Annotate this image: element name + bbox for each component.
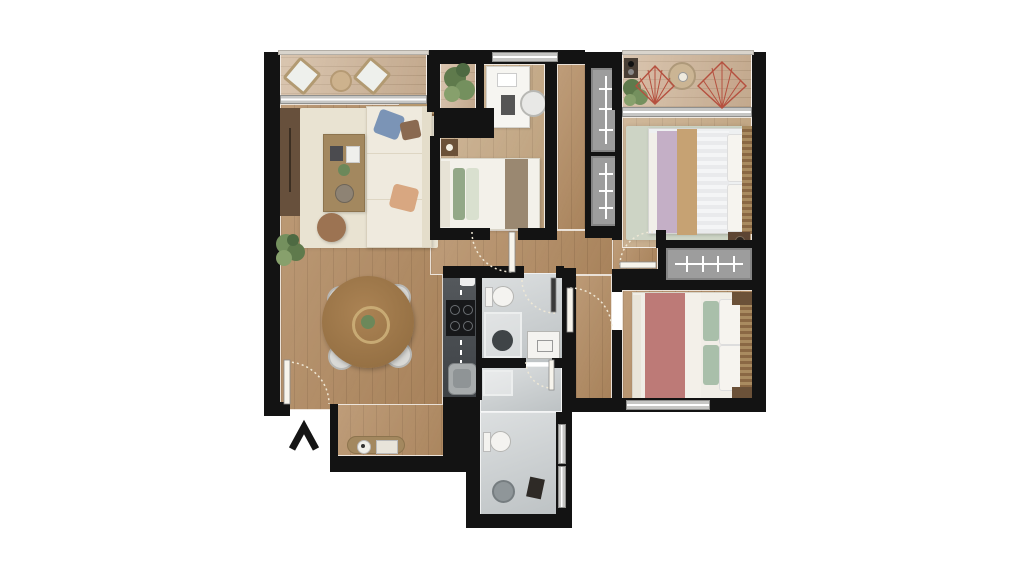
pillow-pattern xyxy=(466,168,479,220)
dining-table xyxy=(322,276,414,368)
closet-tick xyxy=(599,129,614,131)
pillow-brown xyxy=(399,119,421,141)
wall xyxy=(466,400,480,528)
wardrobe xyxy=(666,248,752,280)
wall xyxy=(656,230,666,248)
console-tray xyxy=(376,440,398,454)
wall xyxy=(612,269,666,282)
wall xyxy=(476,266,482,400)
wall xyxy=(330,456,470,472)
wall xyxy=(556,266,564,278)
tv-cabinet xyxy=(280,108,300,216)
coffee-table-book xyxy=(346,146,360,163)
console-item xyxy=(628,61,634,67)
table-item xyxy=(678,72,688,82)
wall xyxy=(443,266,524,278)
pillow-sage xyxy=(453,168,465,220)
floor-bathroom-second-lower xyxy=(480,412,562,516)
cabinet-handle xyxy=(289,128,291,192)
shower-drain-mat xyxy=(492,480,515,503)
toilet-bowl xyxy=(492,286,514,307)
burner xyxy=(450,305,460,315)
console-plate-center xyxy=(361,444,365,448)
wall xyxy=(330,404,338,464)
window xyxy=(558,424,566,464)
wall xyxy=(430,228,490,240)
headboard xyxy=(441,161,450,227)
dining-centerpiece xyxy=(352,306,390,344)
blanket-pink xyxy=(645,293,685,401)
balcony-parapet xyxy=(278,50,429,55)
duvet-striped xyxy=(697,131,729,233)
closet-tick xyxy=(599,173,614,175)
wall xyxy=(562,268,576,412)
wall xyxy=(430,136,440,236)
wall xyxy=(434,108,494,138)
wall xyxy=(612,330,622,402)
burner xyxy=(463,305,473,315)
coffee-table xyxy=(323,134,365,212)
wall xyxy=(427,52,440,112)
console-sideboard xyxy=(347,436,405,454)
washer-door xyxy=(537,340,553,352)
wall xyxy=(752,52,766,412)
sliding-window xyxy=(280,95,427,104)
sink-basin xyxy=(453,369,471,388)
window xyxy=(626,400,710,410)
wall xyxy=(264,52,280,416)
balcony-side-table xyxy=(330,70,352,92)
coffee-table-tray xyxy=(335,184,354,203)
wall xyxy=(476,58,484,110)
wardrobe-tick xyxy=(702,256,704,272)
desk-paper xyxy=(497,73,517,87)
wall xyxy=(545,64,557,236)
wall xyxy=(476,358,526,368)
shower-stall xyxy=(483,370,513,396)
closet-tick xyxy=(599,190,614,192)
coffee-table-books xyxy=(330,146,343,161)
double-bed-top xyxy=(648,128,748,234)
console-item xyxy=(628,69,634,75)
window xyxy=(558,466,566,508)
north-arrow-icon xyxy=(292,427,316,449)
kitchen-sink xyxy=(448,363,477,395)
wall xyxy=(552,358,564,368)
bed-foot xyxy=(633,295,641,399)
balcony-parapet xyxy=(622,50,754,55)
headboard-slats xyxy=(740,292,752,400)
bed-foot xyxy=(649,133,657,231)
floor-plan-canvas xyxy=(0,0,1024,576)
pillow-green xyxy=(703,301,719,341)
burner xyxy=(450,321,460,331)
wardrobe-tick xyxy=(686,256,688,272)
wardrobe-tick xyxy=(733,256,735,272)
burner xyxy=(463,321,473,331)
toilet-bowl xyxy=(490,431,511,452)
lamp xyxy=(446,144,453,151)
blanket-lavender xyxy=(657,131,677,233)
duvet-fold xyxy=(685,293,701,401)
wall xyxy=(264,402,290,416)
closet-tick xyxy=(599,207,614,209)
laptop xyxy=(501,95,515,115)
wall xyxy=(658,240,752,248)
shower-drain xyxy=(492,330,513,351)
shower xyxy=(484,312,522,358)
window xyxy=(622,107,752,117)
floor-plant-nook xyxy=(440,58,476,110)
runner-tan xyxy=(677,129,697,235)
window xyxy=(492,52,558,62)
pouf xyxy=(317,213,346,242)
wardrobe-tick xyxy=(717,256,719,272)
nightstand-single xyxy=(441,139,458,156)
balcony-round-table xyxy=(668,62,696,90)
throw-blanket xyxy=(505,159,528,229)
balcony-console xyxy=(624,58,638,78)
cooktop xyxy=(446,300,475,336)
wall xyxy=(612,52,622,110)
double-bed-bottom xyxy=(632,292,744,400)
pillow-green xyxy=(703,345,719,385)
kitchen-counter xyxy=(443,273,478,397)
wall xyxy=(585,64,591,232)
nightstand xyxy=(732,292,752,305)
washer-vanity xyxy=(527,331,560,359)
single-bed xyxy=(440,158,540,230)
desk-chair xyxy=(520,90,547,117)
wall xyxy=(466,514,572,528)
